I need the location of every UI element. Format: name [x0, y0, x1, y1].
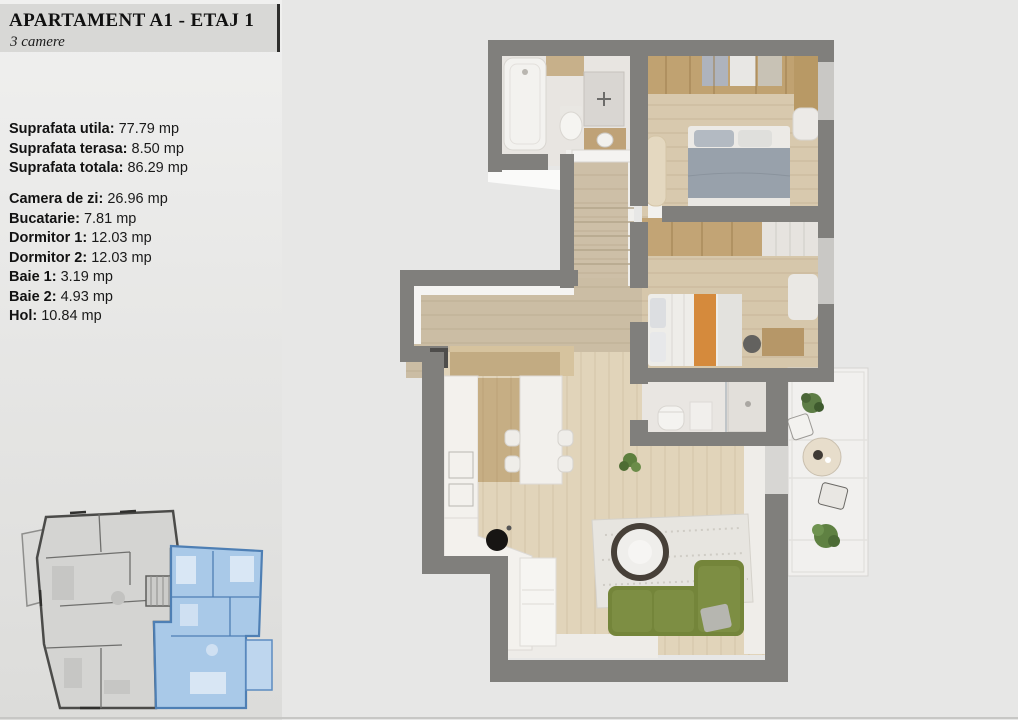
page: APARTAMENT A1 - ETAJ 1 3 camere Suprafat… — [0, 0, 1018, 720]
room-areas-list: Camera de zi: 26.96 mp Bucatarie: 7.81 m… — [9, 190, 269, 327]
surface-summary: Suprafata utila: 77.79 mp Suprafata tera… — [9, 120, 269, 179]
window-bedroom-2 — [818, 238, 834, 304]
shower-2 — [726, 374, 768, 432]
stat-suprafata-utila: Suprafata utila: 77.79 mp — [9, 120, 269, 140]
apartment-title: APARTAMENT A1 - ETAJ 1 — [9, 10, 254, 32]
stat-bucatarie: Bucatarie: 7.81 mp — [9, 210, 269, 230]
bedside-rug — [646, 136, 666, 206]
stat-baie-1: Baie 1: 3.19 mp — [9, 268, 269, 288]
terrace-table — [803, 438, 841, 476]
terrace — [787, 368, 868, 576]
bathtub — [504, 58, 546, 150]
stat-camera-de-zi: Camera de zi: 26.96 mp — [9, 190, 269, 210]
bed-2 — [648, 294, 742, 366]
stat-dormitor-1: Dormitor 1: 12.03 mp — [9, 229, 269, 249]
mini-map-highlighted-unit-a1 — [154, 546, 272, 708]
window-bedroom-1 — [818, 62, 834, 120]
wardrobe-2 — [642, 218, 818, 256]
vanity-2 — [690, 402, 712, 430]
apartment-subtitle: 3 camere — [10, 34, 65, 51]
bed-runner-orange — [694, 294, 716, 366]
building-overview-map — [18, 503, 280, 717]
stat-baie-2: Baie 2: 4.93 mp — [9, 288, 269, 308]
coffee-table — [614, 526, 666, 578]
stat-suprafata-terasa: Suprafata terasa: 8.50 mp — [9, 140, 269, 160]
header-bar: APARTAMENT A1 - ETAJ 1 3 camere — [0, 4, 277, 52]
stat-suprafata-totala: Suprafata totala: 86.29 mp — [9, 159, 269, 179]
terrace-glass-door — [765, 446, 788, 494]
fridge — [520, 558, 556, 646]
info-panel: APARTAMENT A1 - ETAJ 1 3 camere Suprafat… — [0, 0, 282, 720]
stat-hol: Hol: 10.84 mp — [9, 307, 269, 327]
toilet-2 — [658, 406, 684, 430]
desk — [762, 328, 804, 356]
shower-1 — [584, 72, 624, 126]
stat-dormitor-2: Dormitor 2: 12.03 mp — [9, 249, 269, 269]
bath-shelf — [546, 54, 584, 76]
vanity-1 — [584, 128, 626, 152]
desk-chair — [743, 335, 761, 353]
entry-door — [572, 150, 632, 162]
armchair — [793, 108, 819, 140]
toilet-1 — [560, 106, 582, 140]
kitchen-sink — [486, 529, 508, 551]
header-divider — [277, 4, 280, 52]
bed-1 — [688, 126, 790, 218]
mini-map-balcony — [246, 640, 272, 690]
bottom-border-line — [0, 717, 1018, 719]
throw-blanket — [788, 274, 818, 320]
